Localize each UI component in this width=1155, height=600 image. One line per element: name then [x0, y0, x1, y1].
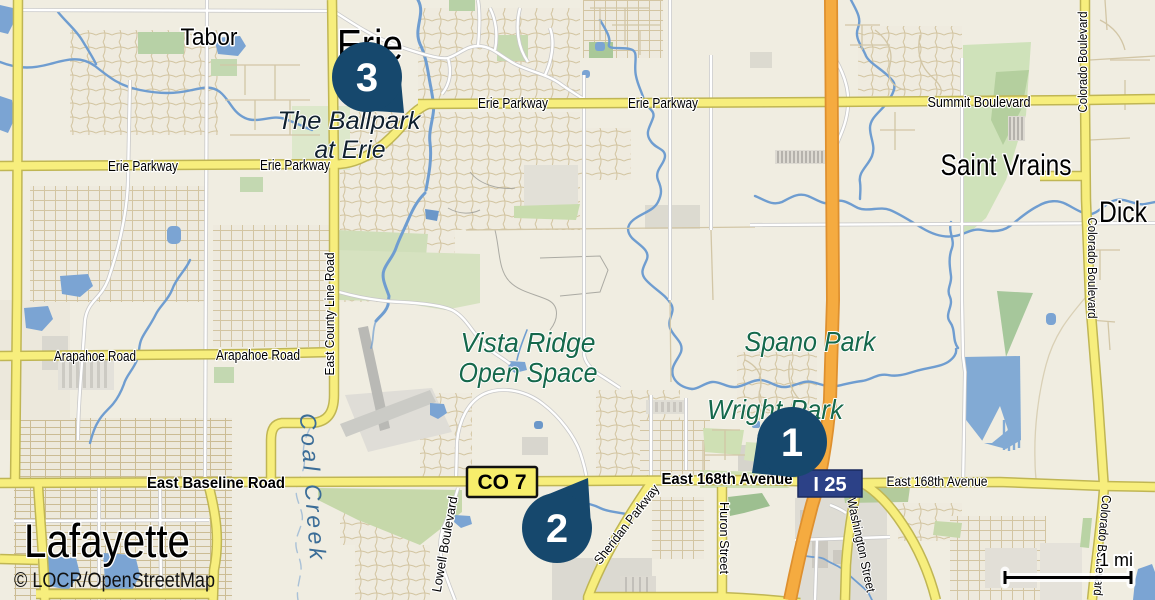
svg-text:Open Space: Open Space [459, 357, 598, 388]
svg-text:Erie Parkway: Erie Parkway [478, 95, 548, 112]
svg-text:Colorado Boulevard: Colorado Boulevard [1085, 218, 1100, 319]
svg-text:3: 3 [356, 56, 378, 100]
svg-text:Arapahoe Road: Arapahoe Road [54, 348, 136, 365]
svg-text:CO 7: CO 7 [477, 471, 526, 494]
svg-text:East 168th Avenue: East 168th Avenue [887, 473, 988, 489]
svg-text:1 mi: 1 mi [1099, 550, 1133, 570]
svg-text:Arapahoe Road: Arapahoe Road [216, 347, 300, 364]
svg-text:Dick: Dick [1099, 196, 1148, 229]
svg-text:Summit Boulevard: Summit Boulevard [928, 94, 1031, 111]
svg-text:Vista Ridge: Vista Ridge [461, 327, 596, 358]
svg-text:East Baseline Road: East Baseline Road [147, 475, 285, 492]
svg-text:Tabor: Tabor [181, 24, 238, 51]
svg-text:Huron Street: Huron Street [717, 502, 732, 574]
svg-text:2: 2 [546, 507, 568, 551]
svg-text:1: 1 [781, 421, 803, 465]
svg-text:I 25: I 25 [813, 474, 846, 496]
svg-text:© LOCR/OpenStreetMap: © LOCR/OpenStreetMap [14, 569, 215, 592]
svg-text:Lafayette: Lafayette [24, 514, 190, 567]
svg-text:East County Line Road: East County Line Road [322, 253, 337, 376]
svg-text:Colorado Boulevard: Colorado Boulevard [1075, 12, 1090, 113]
svg-text:Erie Parkway: Erie Parkway [628, 95, 698, 112]
svg-text:at Erie: at Erie [315, 136, 386, 164]
svg-text:Spano Park: Spano Park [745, 326, 878, 357]
svg-text:Erie Parkway: Erie Parkway [108, 158, 178, 175]
svg-text:Saint Vrains: Saint Vrains [941, 149, 1072, 182]
